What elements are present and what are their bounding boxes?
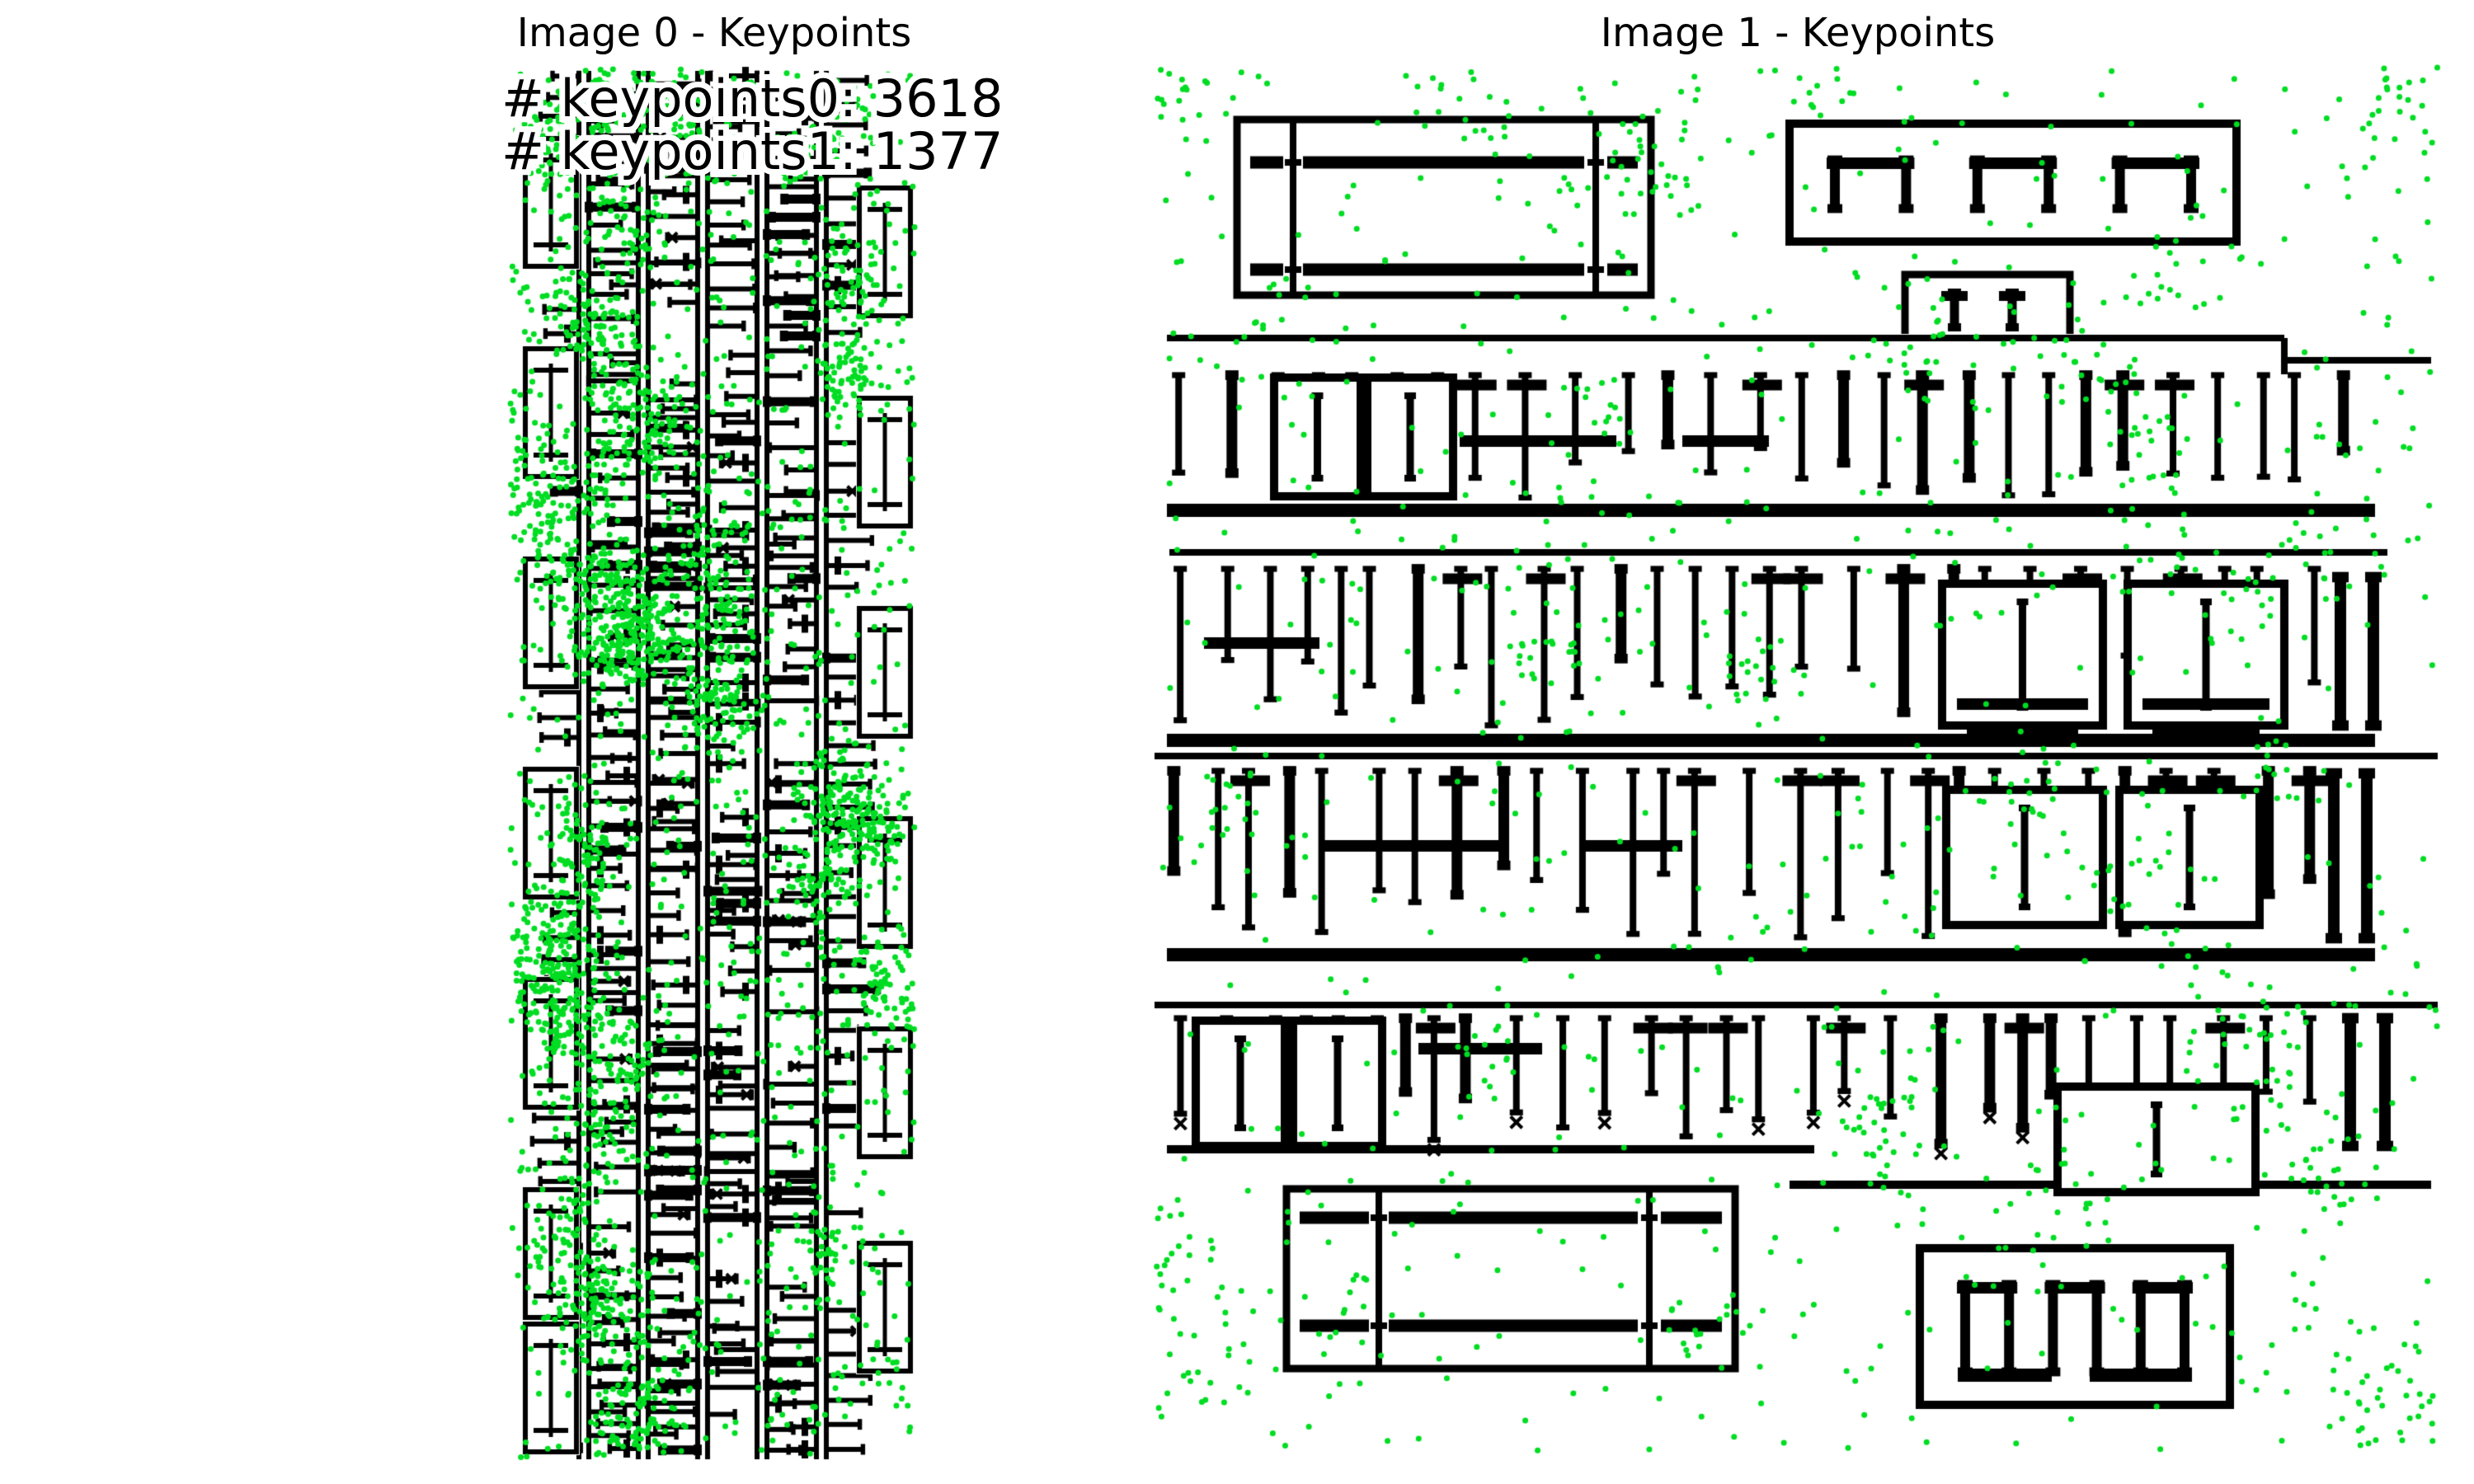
keypoint-count-line-0-text: # keypoints0: 3618 bbox=[501, 73, 1003, 125]
keypoint-count-line-1-text: # keypoints1: 1377 bbox=[501, 125, 1003, 178]
panel-0-title: Image 0 - Keypoints bbox=[509, 10, 920, 56]
panel-1-title: Image 1 - Keypoints bbox=[1155, 10, 2441, 56]
keypoints-figure-canvas bbox=[0, 0, 2474, 1484]
matplotlib-figure: Image 0 - Keypoints Image 1 - Keypoints … bbox=[0, 0, 2474, 1484]
